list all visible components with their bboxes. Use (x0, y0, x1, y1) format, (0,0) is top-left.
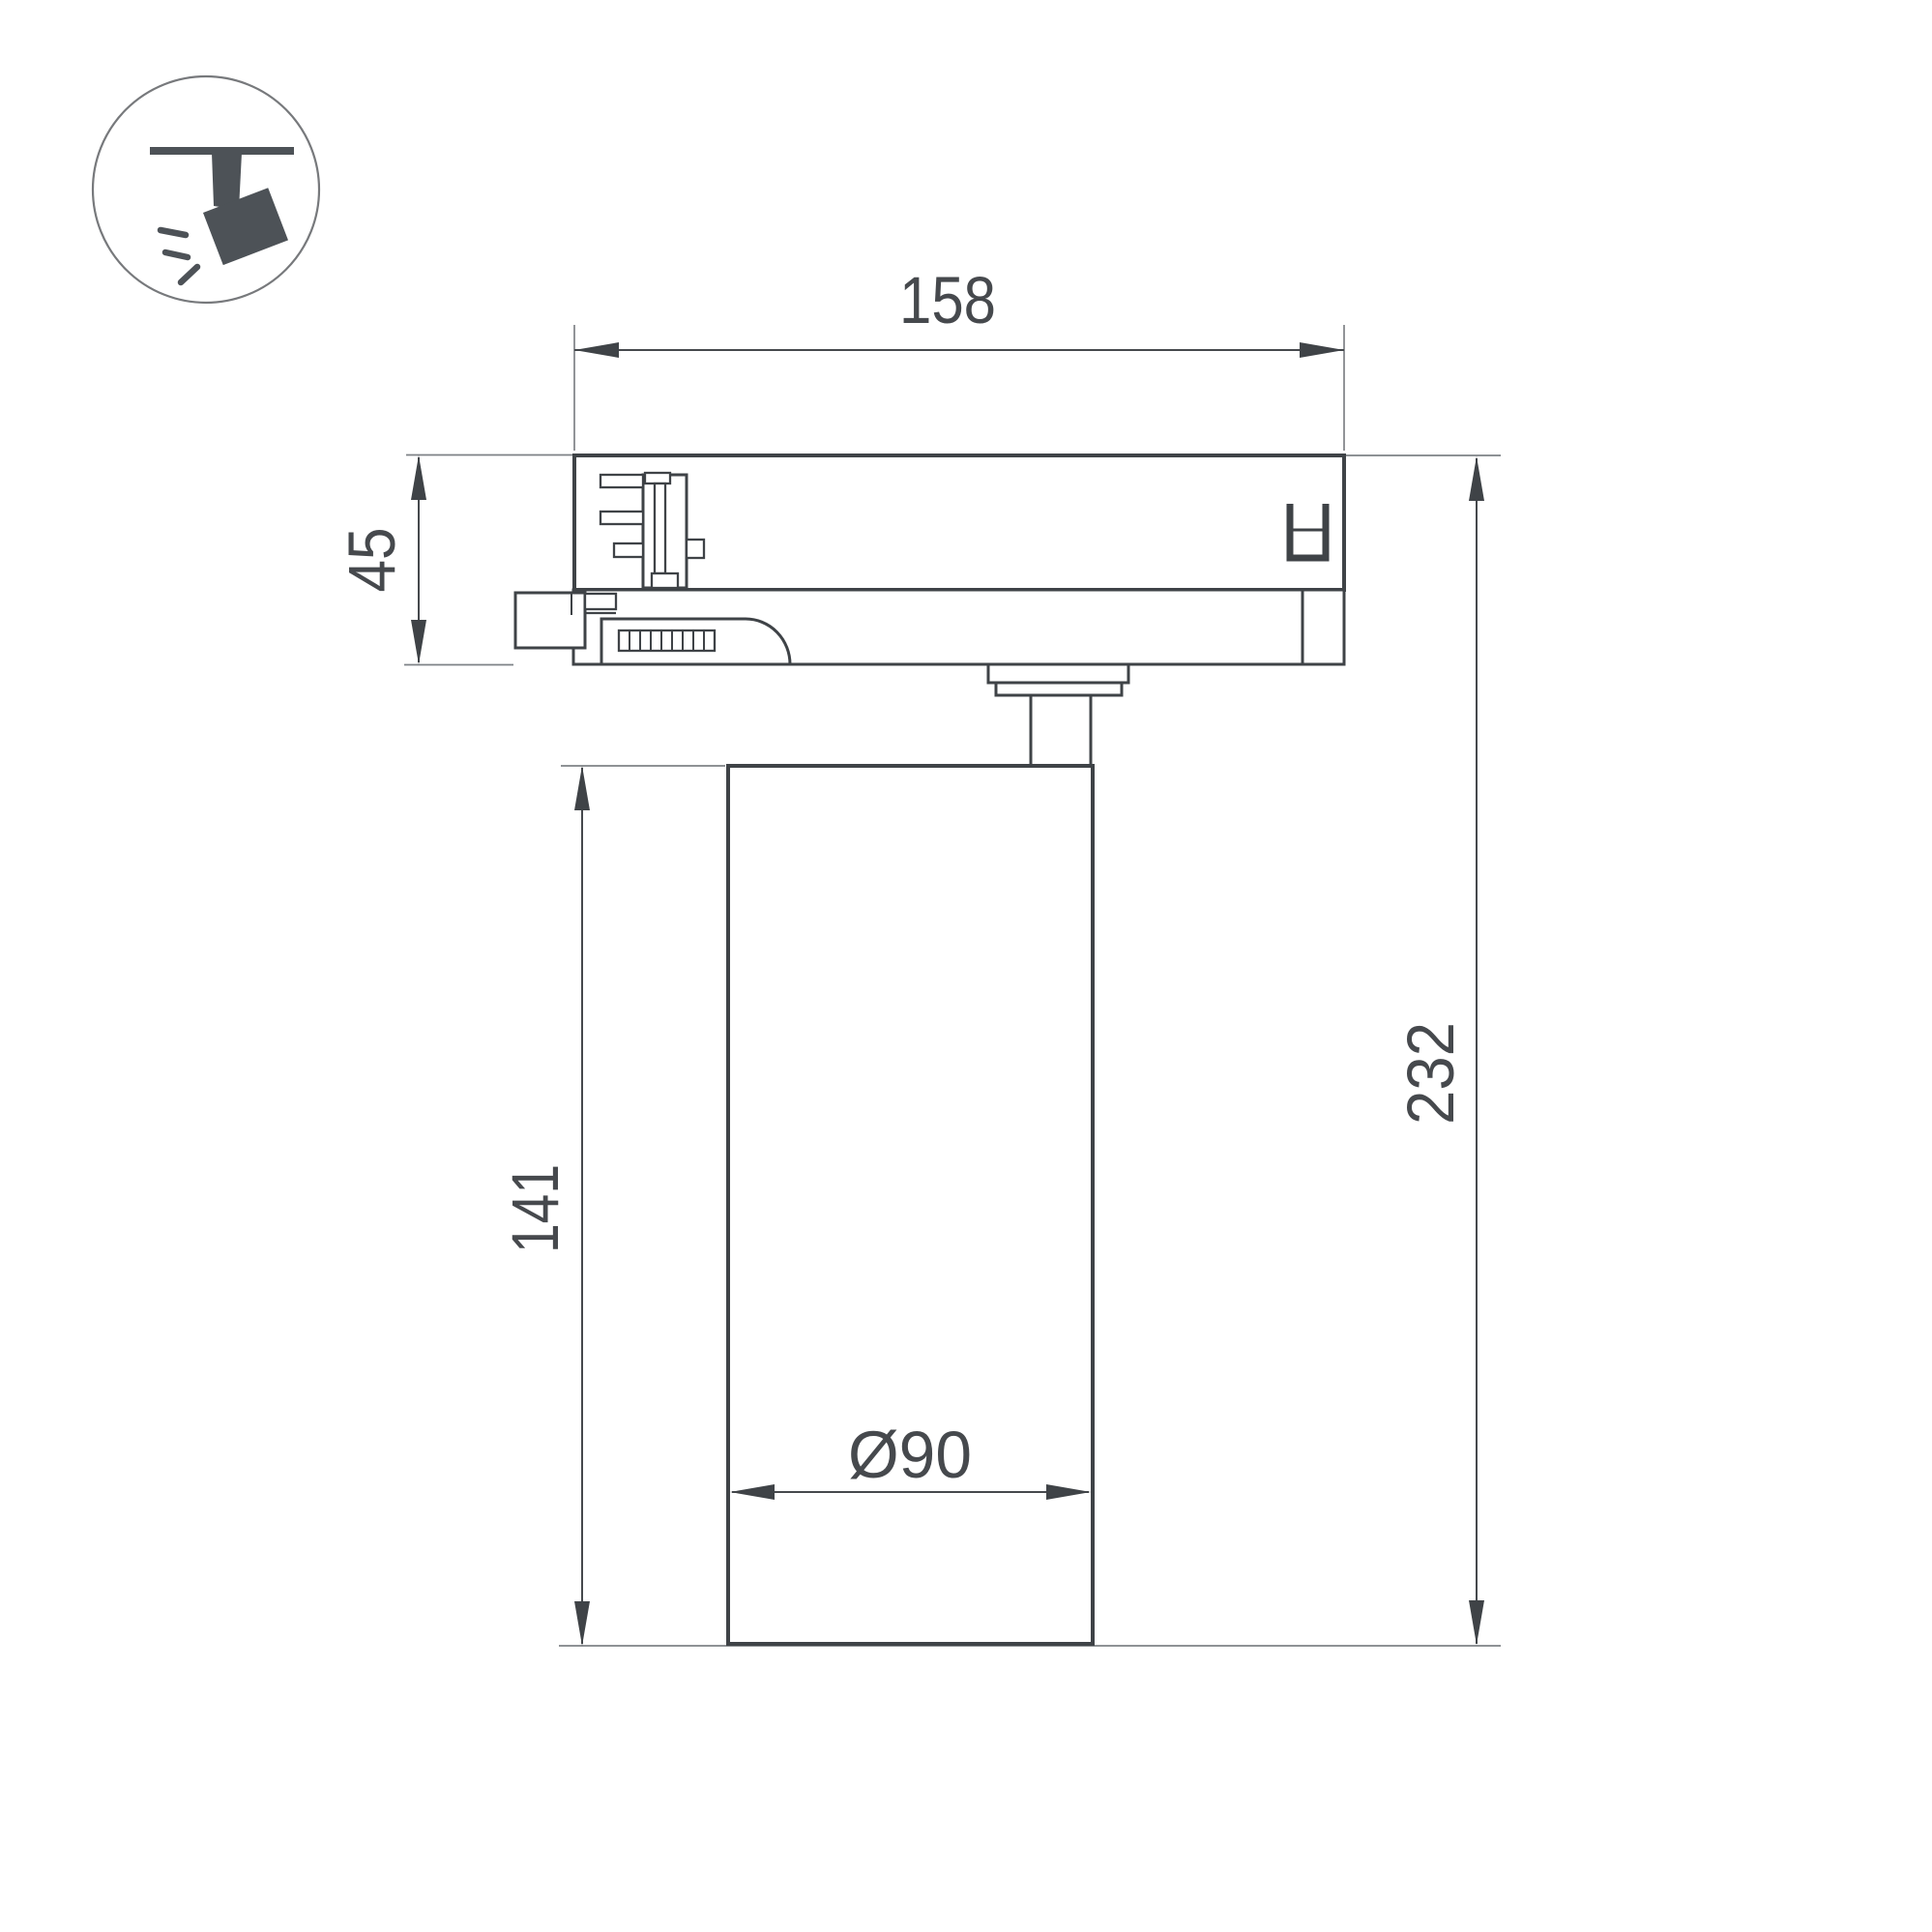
contact-side-tab (687, 540, 704, 558)
dim-label-overall-height: 232 (1393, 1022, 1468, 1125)
icon-circle (93, 76, 319, 303)
lamp-body-cylinder (728, 766, 1093, 1644)
arrowhead-down (411, 620, 426, 664)
dim-label-adapter-width: 158 (899, 263, 996, 337)
icon-light-ray (161, 230, 186, 235)
track-adapter (515, 455, 1344, 664)
spotlight-fixture (728, 664, 1128, 1644)
latch-block (585, 594, 616, 609)
arrowhead-left (574, 342, 619, 358)
dimension-adapter-height: 45 (335, 455, 426, 664)
arrowhead-up (574, 766, 590, 810)
contact-prong-middle (600, 512, 643, 524)
dim-label-body-diameter: Ø90 (848, 1418, 972, 1492)
contact-foot (652, 573, 678, 588)
dim-label-adapter-height: 45 (335, 528, 409, 593)
contact-top-cap (645, 473, 670, 483)
dimension-body-height: 141 (498, 766, 590, 1646)
ventilation-grille (619, 630, 715, 651)
dimension-adapter-width: 158 (574, 263, 1344, 358)
track-spotlight-icon (93, 76, 319, 303)
icon-light-ray (165, 252, 188, 257)
grille-frame (619, 630, 715, 651)
drawing-canvas: 158 45 141 232 Ø90 (0, 0, 1932, 1932)
arrowhead-down (574, 1601, 590, 1646)
icon-light-ray (181, 267, 197, 282)
mount-pedestal-lower (996, 683, 1122, 695)
dim-label-body-height: 141 (498, 1164, 572, 1253)
arrowhead-up (411, 455, 426, 500)
arrowhead-up (1469, 456, 1484, 501)
dimension-overall-height: 232 (1393, 456, 1484, 1645)
contact-screw-rod (655, 483, 665, 573)
contact-prong-bottom (614, 543, 643, 557)
arrowhead-down (1469, 1600, 1484, 1645)
technical-drawing: 158 45 141 232 Ø90 (0, 0, 1932, 1932)
adapter-main-box (574, 455, 1344, 590)
mount-pedestal-upper (988, 664, 1128, 683)
mount-stem (1031, 695, 1091, 767)
arrowhead-right (1300, 342, 1344, 358)
clamp-box (515, 593, 585, 648)
contact-prong-top (600, 475, 643, 487)
